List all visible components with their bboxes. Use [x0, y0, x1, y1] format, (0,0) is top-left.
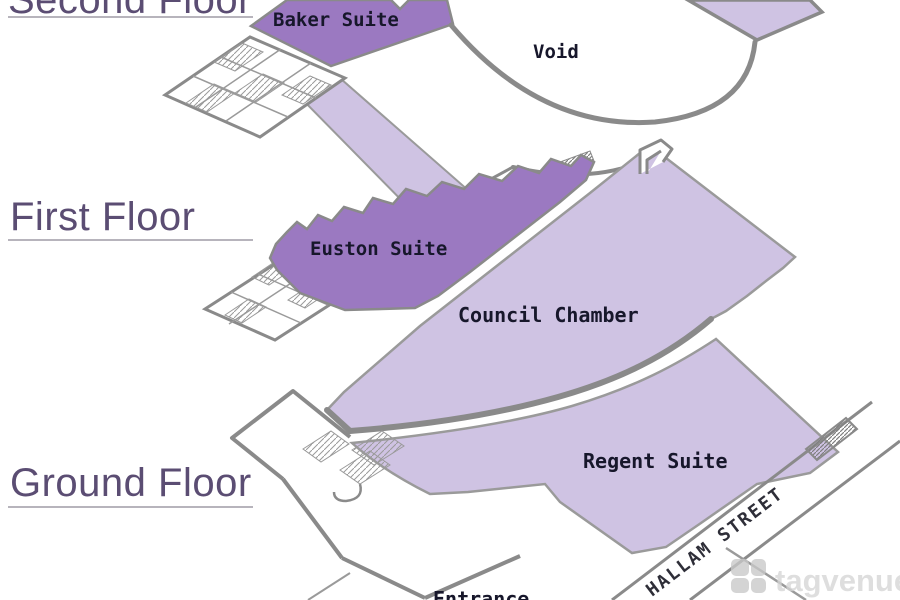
entrance-label: Entrance [433, 587, 529, 600]
baker-suite-label: Baker Suite [273, 9, 399, 31]
tagvenue-logo-icon [731, 559, 766, 593]
first-floor-heading: First Floor [10, 195, 196, 239]
watermark-brand-text: tagvenue [775, 563, 900, 598]
watermark: tagvenue [731, 559, 900, 598]
ground-floor-wall-line [308, 573, 350, 600]
euston-suite-label: Euston Suite [310, 238, 447, 260]
floor-plan-canvas: Second Floor Baker Suite Void First Floo… [0, 0, 900, 600]
second-floor-strip [688, 0, 822, 40]
regent-suite-label: Regent Suite [583, 449, 728, 473]
stair-handrail-curl [334, 484, 361, 501]
void-outline-curve [451, 25, 755, 123]
void-label: Void [533, 41, 579, 63]
ground-floor-heading: Ground Floor [10, 461, 252, 505]
council-chamber-label: Council Chamber [458, 303, 639, 327]
floor-plan-diagram: Second Floor Baker Suite Void First Floo… [0, 0, 900, 600]
second-floor-heading: Second Floor [8, 0, 252, 22]
